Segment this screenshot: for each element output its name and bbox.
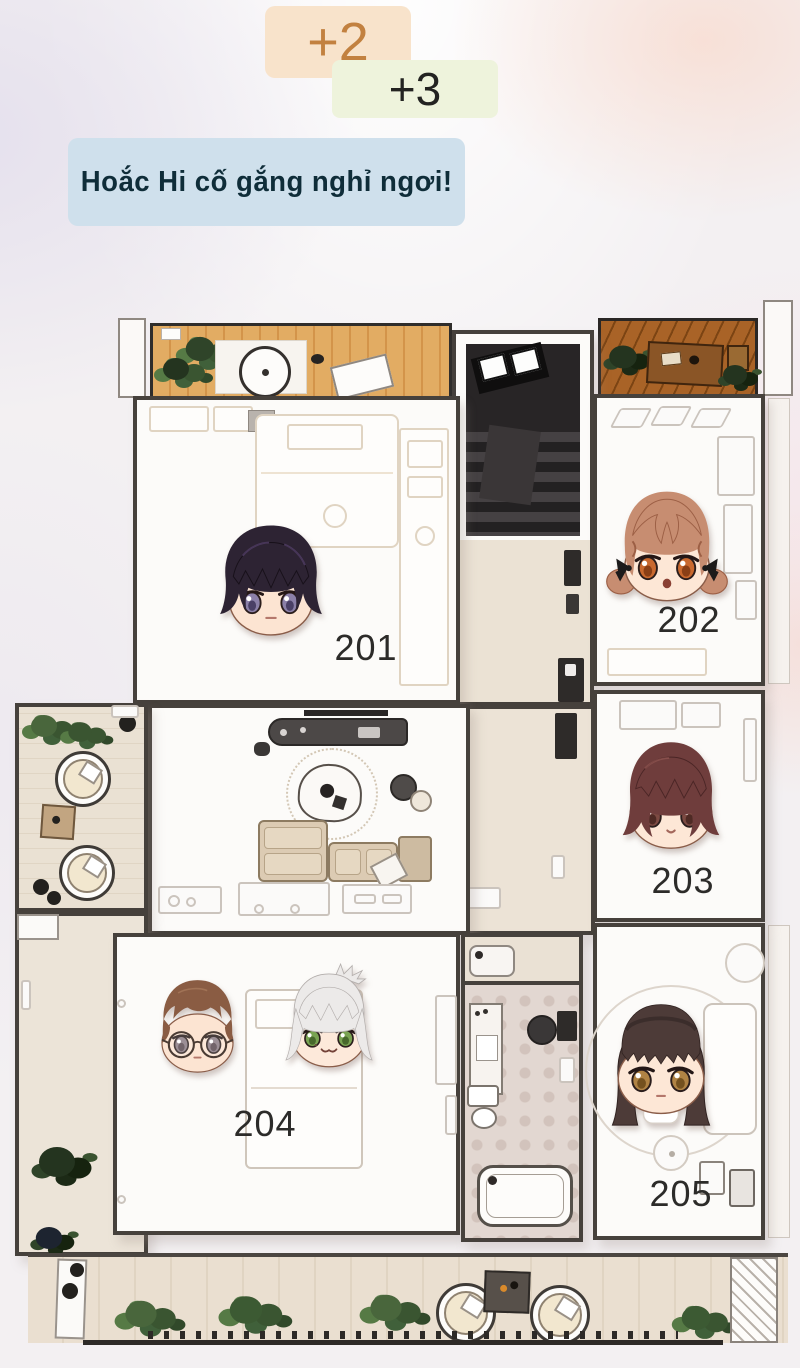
vanity-counter — [469, 1003, 503, 1095]
table-item — [52, 816, 61, 825]
exterior-wall — [763, 300, 793, 396]
character-boy-204 — [141, 972, 254, 1085]
pouf-light — [410, 790, 432, 812]
plant-bush — [68, 722, 91, 742]
plant-bush — [163, 358, 189, 380]
character-boy-201 — [205, 518, 337, 650]
plant-bush — [609, 346, 637, 369]
blanket-fold — [261, 472, 393, 474]
railing-posts — [148, 1331, 678, 1339]
step-landing — [17, 914, 59, 940]
room-204-label: 204 — [233, 1103, 296, 1145]
room-203-label: 203 — [651, 860, 714, 902]
shelf-sketch — [619, 700, 677, 730]
bed-sketch — [607, 648, 707, 676]
balcony-left — [15, 703, 148, 912]
plant-bush — [723, 365, 747, 385]
toilet-bowl — [471, 1107, 497, 1129]
planter-box — [111, 705, 139, 718]
cabinet-dark — [557, 1011, 577, 1041]
sofa-cushion — [264, 827, 322, 849]
stool-center — [669, 1151, 675, 1157]
door-sketch — [743, 718, 757, 782]
terrace-ramp — [730, 1257, 778, 1343]
side-table — [40, 804, 76, 840]
desk-item — [407, 440, 443, 468]
mirror-round — [527, 1015, 557, 1045]
living-room — [148, 704, 470, 935]
plant-bush — [682, 1306, 711, 1330]
stairwell-column — [452, 330, 594, 706]
tv-icon — [304, 710, 388, 716]
character-silver-204 — [271, 964, 387, 1080]
bathtub-inner — [486, 1174, 564, 1218]
side-table — [483, 1270, 530, 1314]
chibi-head-svg — [600, 482, 734, 616]
plant-bush — [31, 715, 57, 737]
desk-item — [415, 526, 435, 546]
desk-item — [407, 476, 443, 498]
bottle-icon — [475, 1011, 480, 1016]
balcony-top-left — [150, 323, 452, 400]
terrace — [28, 1253, 788, 1343]
toilet-tank — [467, 1085, 499, 1107]
doormat — [467, 887, 501, 909]
bathroom-tile-floor — [465, 989, 579, 1238]
shelf-sketch — [435, 995, 457, 1085]
chibi-head-svg — [141, 972, 254, 1085]
mole — [315, 1044, 317, 1046]
chibi-head-svg — [606, 733, 736, 863]
deck-board — [330, 353, 395, 400]
table-item — [510, 1281, 518, 1289]
door-knob — [117, 1195, 126, 1204]
bath-anteroom — [465, 937, 579, 985]
plant-bush — [370, 1295, 401, 1321]
blanket-fold — [251, 1087, 357, 1089]
deck-item — [311, 354, 324, 364]
console-knob — [280, 729, 287, 736]
chibi-head-svg — [593, 993, 729, 1129]
sink-icon — [476, 1035, 498, 1061]
plant-bush — [230, 1296, 263, 1324]
wardrobe-sketch — [149, 406, 209, 432]
floor-plan: 201 202 203 204 205 — [0, 0, 800, 1368]
comic-page: { "badges": { "plus2": {"label": "+2", "… — [0, 0, 800, 1368]
faucet-icon — [488, 1176, 497, 1185]
plant-bush — [186, 337, 215, 361]
console-knob — [300, 727, 306, 733]
wall-fixture — [21, 980, 31, 1010]
wall-fixture — [551, 855, 565, 879]
table-item — [332, 795, 347, 810]
console-panel — [358, 727, 380, 738]
paper-sheet — [661, 351, 682, 366]
plant-pot — [70, 1263, 84, 1277]
sofa-cushion — [335, 849, 361, 875]
counter-item — [354, 894, 376, 904]
bottle-icon — [483, 1009, 488, 1014]
plant-large — [39, 1147, 75, 1177]
room-205-label: 205 — [649, 1173, 712, 1215]
exterior-wall — [768, 925, 790, 1238]
skylight-pane — [610, 408, 653, 428]
room-201-label: 201 — [334, 627, 397, 669]
chibi-head-svg — [205, 518, 337, 650]
plant-bush — [125, 1301, 156, 1327]
bathtub-small — [469, 945, 515, 977]
pillow-sketch — [287, 424, 363, 450]
plant-pot — [62, 1283, 78, 1299]
washer-door — [168, 895, 180, 907]
wall-switch-icon — [566, 594, 579, 614]
media-console — [268, 718, 408, 746]
intercom-screen — [565, 664, 576, 676]
kitchen-cart-sketch — [238, 882, 330, 916]
stairwell — [466, 344, 580, 536]
hallway-floor — [456, 540, 590, 702]
wardrobe-sketch — [213, 406, 253, 432]
cabinet-dark — [555, 713, 577, 759]
plant-pot — [47, 891, 61, 905]
skylight-pane — [690, 408, 733, 428]
stool-sketch — [653, 1135, 689, 1171]
cart-wheel — [254, 904, 264, 914]
sofa-section — [258, 820, 328, 882]
intercom-icon — [558, 658, 584, 702]
egg-chair — [59, 845, 115, 901]
plant-pot — [33, 879, 49, 895]
table-item — [689, 355, 699, 365]
railing-bar — [83, 1340, 723, 1345]
counter-sketch — [342, 884, 412, 914]
wall-panel-icon — [564, 550, 581, 586]
wall-clock-sketch — [725, 943, 765, 983]
room-202-label: 202 — [657, 599, 720, 641]
door-knob — [117, 999, 126, 1008]
table-item — [320, 783, 335, 798]
exterior-wall — [768, 398, 790, 684]
round-table — [239, 346, 291, 398]
bathroom — [461, 933, 583, 1242]
shelf-sketch — [559, 1057, 575, 1083]
balcony-top-right — [598, 318, 758, 398]
shelf-sketch — [445, 1095, 457, 1135]
washer-sketch — [158, 886, 222, 914]
sofa-cushion — [264, 853, 322, 875]
shelf-sketch — [735, 580, 757, 620]
appliance-sketch — [729, 1169, 755, 1207]
exterior-wall — [118, 318, 146, 398]
bathtub — [477, 1165, 573, 1227]
skylight-pane — [650, 406, 693, 426]
egg-chair — [55, 751, 111, 807]
low-table — [646, 341, 724, 387]
counter-item — [382, 894, 402, 904]
table-item — [500, 1285, 507, 1292]
speaker-icon — [254, 742, 270, 756]
faucet-icon — [475, 951, 483, 959]
plant-large — [36, 1227, 62, 1249]
chibi-head-svg — [271, 964, 387, 1080]
desk-sketch — [399, 428, 449, 686]
cart-wheel — [290, 904, 300, 914]
washer-door — [186, 897, 196, 907]
corridor — [455, 705, 595, 935]
shelf-sketch — [681, 702, 721, 728]
stairs-landing — [479, 425, 541, 506]
character-girl-202 — [600, 482, 734, 616]
planter-box — [161, 328, 181, 340]
character-girl-203 — [606, 733, 736, 863]
character-girl-205 — [593, 993, 729, 1129]
